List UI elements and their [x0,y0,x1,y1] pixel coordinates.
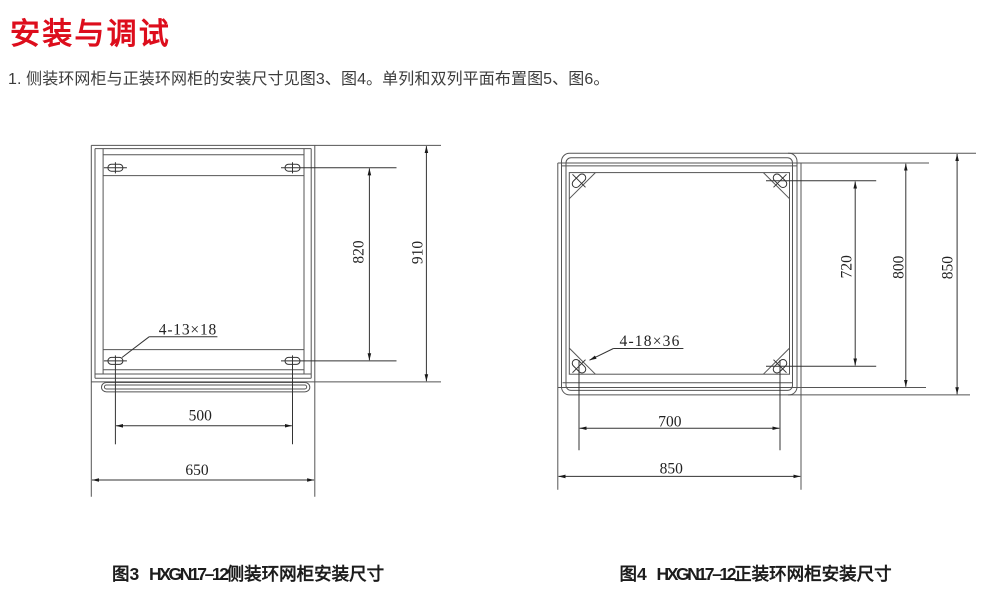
svg-text:800: 800 [891,255,908,279]
svg-text:850: 850 [939,256,956,280]
svg-text:820: 820 [351,240,368,264]
svg-text:850: 850 [660,460,684,477]
svg-text:4-13×18: 4-13×18 [159,321,217,338]
svg-text:720: 720 [839,255,856,279]
svg-text:4-18×36: 4-18×36 [620,333,681,350]
svg-text:650: 650 [185,462,209,479]
svg-text:700: 700 [658,414,682,431]
svg-text:910: 910 [409,241,426,265]
svg-text:500: 500 [189,408,213,425]
